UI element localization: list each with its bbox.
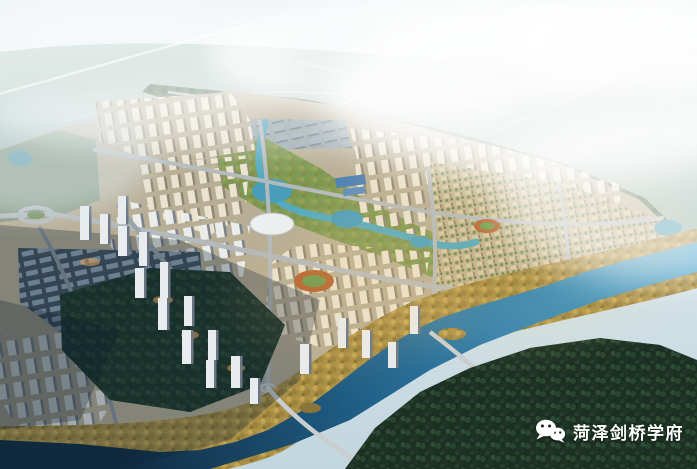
tower <box>160 262 171 298</box>
tower <box>206 360 217 388</box>
scene-canvas <box>0 0 697 469</box>
tower <box>208 330 219 360</box>
tower <box>231 356 243 388</box>
tower <box>158 298 170 330</box>
tower <box>135 268 147 298</box>
aerial-rendering: 菏泽剑桥学府 <box>0 0 697 469</box>
river-islet-2 <box>299 403 321 413</box>
tower <box>139 232 150 266</box>
tower <box>250 378 261 404</box>
white-dome-arena <box>250 213 294 235</box>
haze-band <box>0 80 510 156</box>
tower <box>100 214 111 244</box>
tower <box>182 330 194 364</box>
tower <box>118 196 129 224</box>
tower <box>118 226 130 256</box>
warm-glow-2 <box>230 230 470 370</box>
tower <box>184 296 195 326</box>
